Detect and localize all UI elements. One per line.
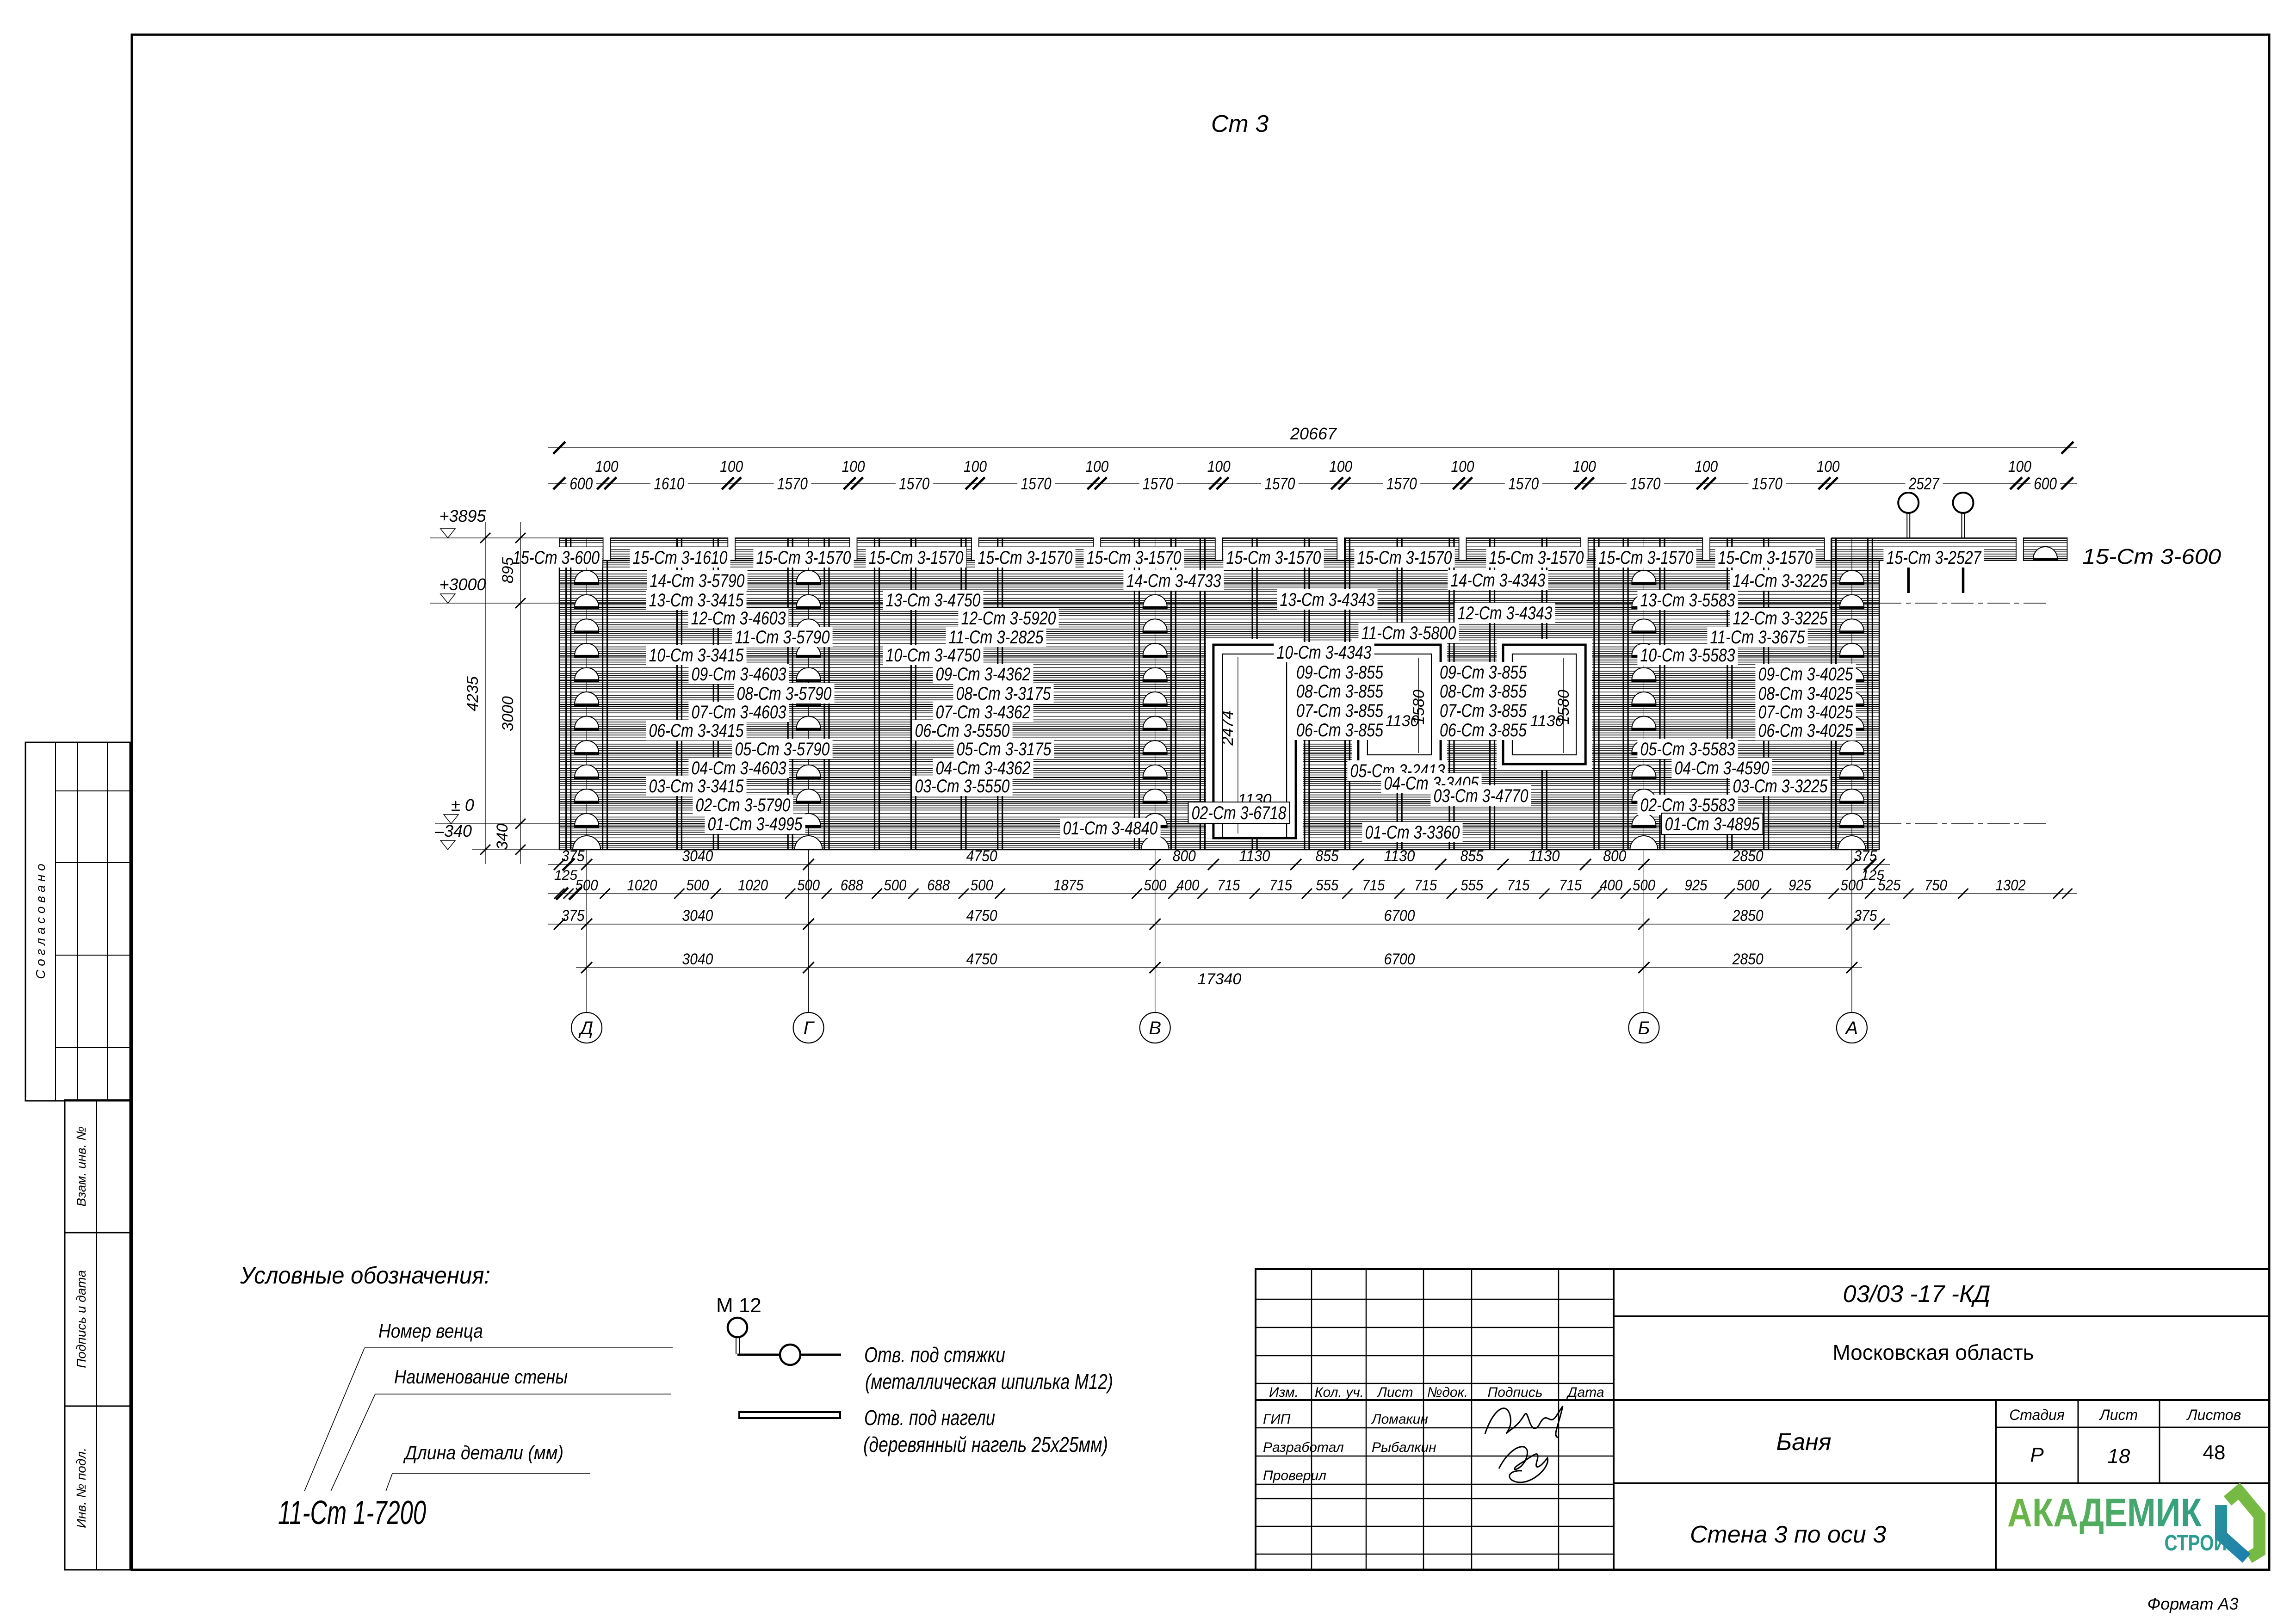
svg-text:555: 555 [1461,876,1484,894]
svg-text:100: 100 [2008,458,2031,475]
svg-text:4750: 4750 [966,907,997,925]
svg-text:375: 375 [1854,907,1877,925]
svg-text:100: 100 [842,458,865,475]
svg-text:05-Ст 3-5790: 05-Ст 3-5790 [735,739,830,759]
svg-text:01-Ст 3-3360: 01-Ст 3-3360 [1365,822,1460,843]
svg-text:Кол. уч.: Кол. уч. [1315,1385,1364,1400]
svg-text:08-Ст 3-4025: 08-Ст 3-4025 [1758,684,1854,704]
svg-text:12-Ст 3-5920: 12-Ст 3-5920 [961,608,1056,629]
svg-text:06-Ст 3-5550: 06-Ст 3-5550 [915,721,1010,741]
svg-text:715: 715 [1362,876,1385,894]
svg-text:15-Ст 3-1570: 15-Ст 3-1570 [1718,548,1813,568]
svg-text:15-Ст 3-1570: 15-Ст 3-1570 [1489,548,1584,568]
svg-text:3040: 3040 [682,950,713,968]
svg-text:В: В [1149,1018,1161,1038]
svg-text:Изм.: Изм. [1269,1385,1299,1400]
svg-text:Баня: Баня [1776,1429,1831,1456]
svg-text:925: 925 [1789,876,1812,894]
svg-text:1570: 1570 [899,474,929,493]
svg-text:1875: 1875 [1053,876,1084,894]
svg-text:+3895: +3895 [439,506,486,525]
svg-text:03-Ст 3-3415: 03-Ст 3-3415 [649,776,744,796]
svg-text:125: 125 [554,868,577,883]
svg-text:Отв. под стяжки: Отв. под стяжки [864,1343,1005,1367]
svg-text:Формат А3: Формат А3 [2147,1594,2239,1613]
svg-text:1130: 1130 [1239,847,1270,865]
svg-text:10-Ст 3-3415: 10-Ст 3-3415 [649,645,744,666]
svg-text:С о г л а с о в а н о: С о г л а с о в а н о [33,864,48,979]
svg-text:100: 100 [1207,458,1231,475]
svg-text:Отв. под нагели: Отв. под нагели [864,1406,995,1430]
svg-text:04-Ст 3-4590: 04-Ст 3-4590 [1675,758,1770,778]
svg-text:Б: Б [1638,1018,1650,1038]
svg-text:04-Ст 3-4603: 04-Ст 3-4603 [692,758,786,778]
svg-text:14-Ст 3-4733: 14-Ст 3-4733 [1126,571,1221,591]
svg-text:07-Ст 3-4603: 07-Ст 3-4603 [692,702,786,722]
svg-text:Подпись: Подпись [1488,1385,1543,1400]
svg-text:08-Ст 3-855: 08-Ст 3-855 [1440,681,1527,702]
svg-text:6700: 6700 [1384,950,1415,968]
svg-text:02-Ст 3-6718: 02-Ст 3-6718 [1192,803,1287,823]
svg-text:1570: 1570 [1630,474,1661,493]
svg-text:12-Ст 3-4343: 12-Ст 3-4343 [1458,603,1553,623]
svg-text:555: 555 [1316,876,1339,894]
svg-text:Листов: Листов [2186,1407,2241,1423]
svg-text:03-Ст 3-3225: 03-Ст 3-3225 [1733,776,1828,796]
svg-text:2527: 2527 [1908,474,1940,493]
svg-text:800: 800 [1173,847,1196,865]
svg-text:Подпись и дата: Подпись и дата [74,1270,88,1368]
svg-text:48: 48 [2203,1441,2226,1464]
svg-text:6700: 6700 [1384,907,1415,925]
svg-text:100: 100 [1573,458,1596,475]
svg-text:750: 750 [1925,876,1948,894]
svg-text:375: 375 [562,847,585,865]
svg-text:–340: –340 [434,821,472,840]
svg-text:13-Ст 3-4750: 13-Ст 3-4750 [886,590,981,611]
svg-text:1570: 1570 [1386,474,1417,493]
svg-text:100: 100 [1451,458,1474,475]
svg-text:06-Ст 3-4025: 06-Ст 3-4025 [1758,721,1854,741]
svg-text:100: 100 [595,458,619,475]
svg-text:800: 800 [1603,847,1626,865]
svg-text:1570: 1570 [1021,474,1052,493]
svg-text:Р: Р [2030,1444,2044,1466]
svg-text:3000: 3000 [499,696,517,731]
svg-text:375: 375 [562,907,585,925]
svg-text:01-Ст 3-4995: 01-Ст 3-4995 [708,814,803,834]
svg-text:1130: 1130 [1530,712,1564,730]
svg-text:15-Ст 3-1570: 15-Ст 3-1570 [756,548,851,568]
svg-text:№док.: №док. [1427,1385,1468,1400]
svg-text:14-Ст 3-3225: 14-Ст 3-3225 [1733,571,1828,591]
svg-text:Разработал: Разработал [1263,1440,1344,1455]
svg-text:09-Ст 3-855: 09-Ст 3-855 [1440,662,1527,683]
svg-text:500: 500 [686,876,709,894]
svg-text:Лист: Лист [1376,1385,1413,1400]
svg-text:688: 688 [927,876,950,894]
svg-text:+3000: +3000 [439,575,486,594]
svg-text:Инв. № подл.: Инв. № подл. [74,1448,88,1528]
svg-text:Условные обозначения:: Условные обозначения: [240,1262,490,1289]
svg-text:3040: 3040 [682,847,713,865]
svg-text:Длина детали (мм): Длина детали (мм) [403,1442,563,1463]
svg-text:07-Ст 3-4362: 07-Ст 3-4362 [936,702,1031,722]
svg-text:05-Ст 3-5583: 05-Ст 3-5583 [1640,739,1735,759]
svg-text:04-Ст 3-4362: 04-Ст 3-4362 [936,758,1031,778]
svg-text:13-Ст 3-3415: 13-Ст 3-3415 [649,590,744,611]
svg-text:4235: 4235 [464,676,482,711]
svg-text:715: 715 [1269,876,1293,894]
svg-text:10-Ст 3-5583: 10-Ст 3-5583 [1640,645,1735,666]
svg-text:02-Ст 3-5790: 02-Ст 3-5790 [696,795,791,815]
svg-text:Взам. инв. №: Взам. инв. № [74,1126,88,1206]
svg-text:715: 715 [1217,876,1240,894]
svg-text:855: 855 [1461,847,1484,865]
svg-text:400: 400 [1600,876,1623,894]
svg-text:Московская область: Московская область [1832,1340,2034,1364]
svg-text:15-Ст 3-600: 15-Ст 3-600 [2082,544,2221,568]
svg-text:07-Ст 3-855: 07-Ст 3-855 [1296,701,1384,721]
svg-text:Наименование стены: Наименование стены [394,1366,568,1388]
svg-text:15-Ст 3-1570: 15-Ст 3-1570 [1599,548,1694,568]
svg-text:(металлическая шпилька М12): (металлическая шпилька М12) [865,1370,1113,1394]
svg-text:02-Ст 3-5583: 02-Ст 3-5583 [1640,795,1735,815]
svg-text:2850: 2850 [1732,950,1764,968]
svg-text:15-Ст 3-1570: 15-Ст 3-1570 [978,548,1073,568]
svg-text:688: 688 [841,876,864,894]
svg-text:07-Ст 3-4025: 07-Ст 3-4025 [1758,702,1854,722]
svg-text:15-Ст 3-1570: 15-Ст 3-1570 [1357,548,1452,568]
svg-text:400: 400 [1176,876,1200,894]
svg-text:1130: 1130 [1529,847,1560,865]
svg-text:09-Ст 3-4603: 09-Ст 3-4603 [692,664,786,685]
svg-text:01-Ст 3-4895: 01-Ст 3-4895 [1665,814,1760,834]
svg-text:13-Ст 3-5583: 13-Ст 3-5583 [1640,590,1735,611]
svg-text:12-Ст 3-3225: 12-Ст 3-3225 [1733,608,1828,629]
svg-text:20667: 20667 [1290,424,1337,443]
svg-text:11-Ст 1-7200: 11-Ст 1-7200 [278,1494,426,1531]
svg-text:525: 525 [1878,876,1901,894]
svg-text:17340: 17340 [1198,970,1242,988]
svg-text:Стена 3 по оси 3: Стена 3 по оси 3 [1690,1521,1886,1548]
svg-text:2850: 2850 [1732,907,1764,925]
svg-text:4750: 4750 [966,847,997,865]
svg-text:Д: Д [578,1018,593,1038]
svg-text:Номер венца: Номер венца [378,1320,483,1342]
svg-text:11-Ст 3-3675: 11-Ст 3-3675 [1710,627,1806,648]
svg-text:2474: 2474 [1219,710,1237,746]
svg-text:Лист: Лист [2099,1407,2138,1423]
svg-text:08-Ст 3-855: 08-Ст 3-855 [1296,681,1384,702]
svg-text:15-Ст 3-1570: 15-Ст 3-1570 [1087,548,1182,568]
svg-text:06-Ст 3-855: 06-Ст 3-855 [1440,720,1527,741]
svg-text:03-Ст 3-5550: 03-Ст 3-5550 [915,776,1010,796]
svg-text:340: 340 [494,824,511,850]
svg-text:1570: 1570 [1508,474,1539,493]
svg-text:01-Ст 3-4840: 01-Ст 3-4840 [1063,818,1158,839]
svg-text:(деревянный нагель 25х25мм): (деревянный нагель 25х25мм) [863,1432,1108,1456]
svg-text:1302: 1302 [1996,876,2026,894]
svg-text:Дата: Дата [1566,1385,1604,1400]
svg-text:4750: 4750 [966,950,997,968]
svg-text:100: 100 [720,458,743,475]
svg-text:715: 715 [1507,876,1530,894]
svg-text:15-Ст 3-600: 15-Ст 3-600 [513,548,600,568]
svg-text:06-Ст 3-3415: 06-Ст 3-3415 [649,721,744,741]
svg-text:18: 18 [2108,1445,2130,1468]
svg-text:600: 600 [569,474,593,493]
svg-text:500: 500 [971,876,994,894]
svg-text:08-Ст 3-3175: 08-Ст 3-3175 [956,684,1052,704]
svg-text:ГИП: ГИП [1263,1412,1291,1427]
svg-text:Рыбалкин: Рыбалкин [1372,1440,1436,1455]
svg-text:± 0: ± 0 [451,796,474,815]
svg-text:03-Ст 3-4770: 03-Ст 3-4770 [1434,786,1529,806]
svg-text:1570: 1570 [777,474,808,493]
svg-text:715: 715 [1559,876,1582,894]
svg-text:3040: 3040 [682,907,713,925]
svg-text:09-Ст 3-4025: 09-Ст 3-4025 [1758,664,1854,685]
svg-text:1020: 1020 [738,876,768,894]
svg-text:1570: 1570 [1143,474,1173,493]
svg-text:10-Ст 3-4750: 10-Ст 3-4750 [886,645,981,666]
svg-text:А: А [1845,1018,1858,1038]
svg-text:Стадия: Стадия [2009,1407,2065,1423]
svg-text:Проверил: Проверил [1263,1468,1326,1483]
svg-text:14-Ст 3-4343: 14-Ст 3-4343 [1451,570,1546,591]
svg-text:100: 100 [1085,458,1108,475]
svg-text:АКАДЕМИК: АКАДЕМИК [2007,1491,2202,1535]
svg-text:13-Ст 3-4343: 13-Ст 3-4343 [1280,590,1375,610]
svg-text:855: 855 [1316,847,1339,865]
svg-text:925: 925 [1684,876,1708,894]
svg-text:100: 100 [964,458,987,475]
svg-text:1570: 1570 [1752,474,1782,493]
svg-text:500: 500 [1737,876,1760,894]
svg-text:Ломакин: Ломакин [1371,1412,1428,1427]
svg-text:500: 500 [884,876,907,894]
svg-text:1570: 1570 [1264,474,1295,493]
svg-text:05-Ст 3-3175: 05-Ст 3-3175 [957,739,1052,759]
svg-text:600: 600 [2034,474,2057,493]
svg-text:Ст 3: Ст 3 [1211,111,1269,137]
svg-text:100: 100 [1695,458,1718,475]
svg-text:11-Ст 3-5790: 11-Ст 3-5790 [735,627,830,648]
svg-text:10-Ст 3-4343: 10-Ст 3-4343 [1277,642,1372,663]
svg-text:15-Ст 3-1570: 15-Ст 3-1570 [1226,548,1321,568]
svg-text:14-Ст 3-5790: 14-Ст 3-5790 [650,571,745,591]
svg-text:11-Ст 3-2825: 11-Ст 3-2825 [949,627,1044,648]
svg-text:М 12: М 12 [716,1294,761,1317]
svg-text:08-Ст 3-5790: 08-Ст 3-5790 [737,684,832,704]
svg-text:15-Ст 3-2527: 15-Ст 3-2527 [1887,548,1982,568]
svg-text:09-Ст 3-855: 09-Ст 3-855 [1296,662,1384,683]
svg-text:15-Ст 3-1610: 15-Ст 3-1610 [633,548,728,568]
svg-text:715: 715 [1414,876,1437,894]
svg-text:06-Ст 3-855: 06-Ст 3-855 [1296,720,1384,741]
svg-text:03/03 -17 -КД: 03/03 -17 -КД [1843,1281,1991,1308]
svg-text:1020: 1020 [627,876,658,894]
svg-text:11-Ст 3-5800: 11-Ст 3-5800 [1362,623,1456,643]
svg-text:2850: 2850 [1732,847,1764,865]
svg-text:09-Ст 3-4362: 09-Ст 3-4362 [936,664,1031,685]
svg-text:15-Ст 3-1570: 15-Ст 3-1570 [869,548,964,568]
svg-text:12-Ст 3-4603: 12-Ст 3-4603 [691,608,786,629]
svg-text:1130: 1130 [1384,847,1415,865]
svg-text:895: 895 [499,557,517,584]
svg-text:1130: 1130 [1385,712,1419,730]
svg-text:1610: 1610 [654,474,684,493]
svg-text:100: 100 [1817,458,1840,475]
svg-text:07-Ст 3-855: 07-Ст 3-855 [1440,701,1527,721]
svg-text:Г: Г [804,1018,815,1038]
svg-text:100: 100 [1329,458,1352,475]
